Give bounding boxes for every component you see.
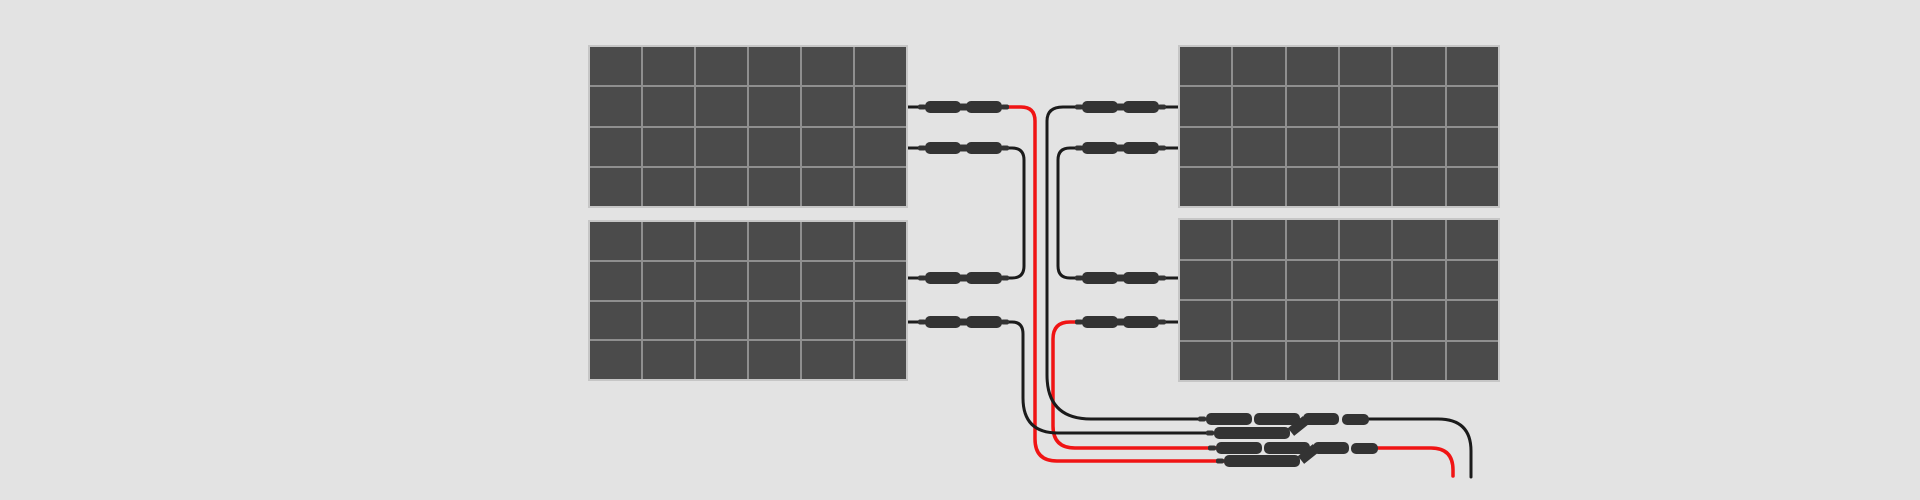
mc4-body	[925, 101, 961, 113]
panel-cell	[1340, 220, 1391, 259]
panel-cell	[643, 47, 694, 85]
panel-cell	[643, 222, 694, 260]
panel-cell	[643, 168, 694, 206]
panel-cell	[1233, 87, 1284, 125]
mc4-tip	[1158, 105, 1166, 110]
panel-cell	[1180, 342, 1231, 381]
panel-cell	[1287, 47, 1338, 85]
panel-cell	[590, 222, 641, 260]
panel-cell	[1393, 261, 1444, 300]
mc4-tip	[1075, 105, 1083, 110]
panel-cell	[1233, 47, 1284, 85]
panel-cell	[802, 222, 853, 260]
panel-cell	[749, 47, 800, 85]
mc4-connector-pair	[1075, 316, 1166, 328]
mc4-tip	[1198, 417, 1206, 422]
panel-cell	[1447, 47, 1498, 85]
branch-connector-red	[1208, 442, 1378, 467]
mc4-body	[1254, 413, 1300, 425]
mc4-connector-pair	[918, 142, 1009, 154]
mc4-body	[1123, 272, 1159, 284]
panel-cell	[590, 168, 641, 206]
panel-cell	[749, 222, 800, 260]
panel-cell	[802, 168, 853, 206]
panel-cell	[802, 47, 853, 85]
mc4-body	[925, 316, 961, 328]
solar-panel-top-left	[588, 45, 908, 208]
solar-panel-bottom-left	[588, 220, 908, 381]
panel-cell	[1447, 87, 1498, 125]
mc4-body	[1082, 316, 1118, 328]
panel-cell	[855, 47, 906, 85]
panel-cell	[1393, 168, 1444, 206]
panel-cell	[590, 47, 641, 85]
panel-cell	[590, 87, 641, 125]
panel-cell	[1340, 261, 1391, 300]
panel-cell	[1180, 220, 1231, 259]
mc4-body	[966, 272, 1002, 284]
wiring-diagram	[0, 0, 1920, 500]
panel-cell	[696, 47, 747, 85]
panel-cell	[802, 87, 853, 125]
mc4-tip	[918, 320, 926, 325]
mc4-tip	[1075, 320, 1083, 325]
wire-red-output-lead	[1375, 448, 1453, 476]
panel-cell	[1340, 87, 1391, 125]
mc4-body	[1082, 272, 1118, 284]
mc4-body	[966, 101, 1002, 113]
panel-cell	[1447, 220, 1498, 259]
panel-cell	[855, 222, 906, 260]
mc4-body	[966, 142, 1002, 154]
mc4-body	[1214, 427, 1290, 439]
wire-series-link-right	[1058, 148, 1178, 278]
mc4-body	[1206, 413, 1252, 425]
panel-cell	[590, 302, 641, 340]
panel-cell	[590, 128, 641, 166]
panel-cell	[643, 128, 694, 166]
panel-cell	[696, 222, 747, 260]
panel-cell	[1180, 301, 1231, 340]
panel-cell	[643, 302, 694, 340]
panel-cell	[1180, 128, 1231, 166]
mc4-connector-pair	[918, 316, 1009, 328]
panel-cell	[1233, 261, 1284, 300]
branch-connector-black	[1198, 413, 1369, 439]
wire-series-link-left	[908, 148, 1024, 278]
panel-cell	[802, 262, 853, 300]
mc4-tip	[1158, 320, 1166, 325]
panel-cell	[1233, 168, 1284, 206]
panel-cell	[802, 128, 853, 166]
panel-cell	[1447, 301, 1498, 340]
panel-cell	[749, 262, 800, 300]
mc4-body	[1123, 142, 1159, 154]
panel-cell	[1393, 128, 1444, 166]
panel-cell	[855, 128, 906, 166]
panel-cell	[590, 341, 641, 379]
mc4-tip	[1216, 459, 1224, 464]
panel-cell	[1393, 87, 1444, 125]
panel-cell	[1180, 261, 1231, 300]
mc4-body	[1082, 101, 1118, 113]
mc4-tip	[1001, 146, 1009, 151]
mc4-body	[925, 142, 961, 154]
panel-cell	[1233, 301, 1284, 340]
wiring-layer	[0, 0, 1920, 500]
panel-cell	[749, 87, 800, 125]
mc4-tip	[918, 105, 926, 110]
panel-cell	[1393, 342, 1444, 381]
panel-cell	[1340, 301, 1391, 340]
mc4-connector-pair	[918, 272, 1009, 284]
mc4-connector-pair	[1075, 272, 1166, 284]
panel-cell	[1393, 301, 1444, 340]
mc4-tip	[1206, 431, 1214, 436]
panel-cell	[1340, 47, 1391, 85]
mc4-body	[1351, 443, 1378, 454]
mc4-connector-pair	[1075, 101, 1166, 113]
mc4-tip	[1075, 276, 1083, 281]
panel-cell	[643, 341, 694, 379]
panel-cell	[1447, 342, 1498, 381]
mc4-tip	[918, 276, 926, 281]
mc4-body	[966, 316, 1002, 328]
mc4-connector-pair	[918, 101, 1009, 113]
panel-cell	[1287, 220, 1338, 259]
panel-cell	[643, 262, 694, 300]
mc4-body	[925, 272, 961, 284]
mc4-body	[1303, 413, 1339, 425]
panel-cell	[1340, 128, 1391, 166]
panel-cell	[1340, 342, 1391, 381]
mc4-tip	[1075, 146, 1083, 151]
panel-cell	[855, 87, 906, 125]
panel-cell	[1287, 168, 1338, 206]
panel-cell	[696, 341, 747, 379]
panel-cell	[749, 341, 800, 379]
mc4-body	[1342, 414, 1369, 425]
panel-cell	[696, 262, 747, 300]
panel-cell	[1233, 128, 1284, 166]
panel-cell	[1447, 128, 1498, 166]
panel-cell	[1340, 168, 1391, 206]
panel-cell	[749, 168, 800, 206]
panel-cell	[696, 168, 747, 206]
solar-panel-bottom-right	[1178, 218, 1500, 382]
panel-cell	[696, 302, 747, 340]
mc4-tip	[1208, 446, 1216, 451]
panel-cell	[1287, 342, 1338, 381]
mc4-body	[1082, 142, 1118, 154]
panel-cell	[1447, 261, 1498, 300]
inline-mc4-connectors	[918, 101, 1166, 328]
mc4-tip	[1001, 105, 1009, 110]
panel-cell	[696, 128, 747, 166]
panel-cell	[1447, 168, 1498, 206]
mc4-tip	[918, 146, 926, 151]
mc4-tip	[1001, 320, 1009, 325]
panel-cell	[1287, 128, 1338, 166]
panel-cell	[855, 262, 906, 300]
mc4-body	[1123, 101, 1159, 113]
panel-cell	[802, 341, 853, 379]
mc4-tip	[1001, 276, 1009, 281]
panel-cell	[802, 302, 853, 340]
mc4-body	[1216, 442, 1262, 454]
solar-panel-top-right	[1178, 45, 1500, 208]
panel-cell	[1233, 342, 1284, 381]
panel-cell	[855, 302, 906, 340]
panel-cell	[1233, 220, 1284, 259]
panel-cell	[1287, 261, 1338, 300]
panel-cell	[643, 87, 694, 125]
panel-cell	[1180, 168, 1231, 206]
mc4-tip	[1158, 146, 1166, 151]
panel-cell	[1287, 87, 1338, 125]
panel-cell	[1180, 87, 1231, 125]
panel-cell	[1180, 47, 1231, 85]
panel-cell	[1393, 47, 1444, 85]
panel-cell	[749, 128, 800, 166]
mc4-body	[1313, 442, 1349, 454]
mc4-body	[1224, 455, 1300, 467]
panel-cell	[696, 87, 747, 125]
panel-cell	[1393, 220, 1444, 259]
mc4-connector-pair	[1075, 142, 1166, 154]
mc4-body	[1123, 316, 1159, 328]
panel-cell	[1287, 301, 1338, 340]
panel-cell	[749, 302, 800, 340]
mc4-tip	[1158, 276, 1166, 281]
panel-cell	[855, 341, 906, 379]
panel-cell	[855, 168, 906, 206]
panel-cell	[590, 262, 641, 300]
